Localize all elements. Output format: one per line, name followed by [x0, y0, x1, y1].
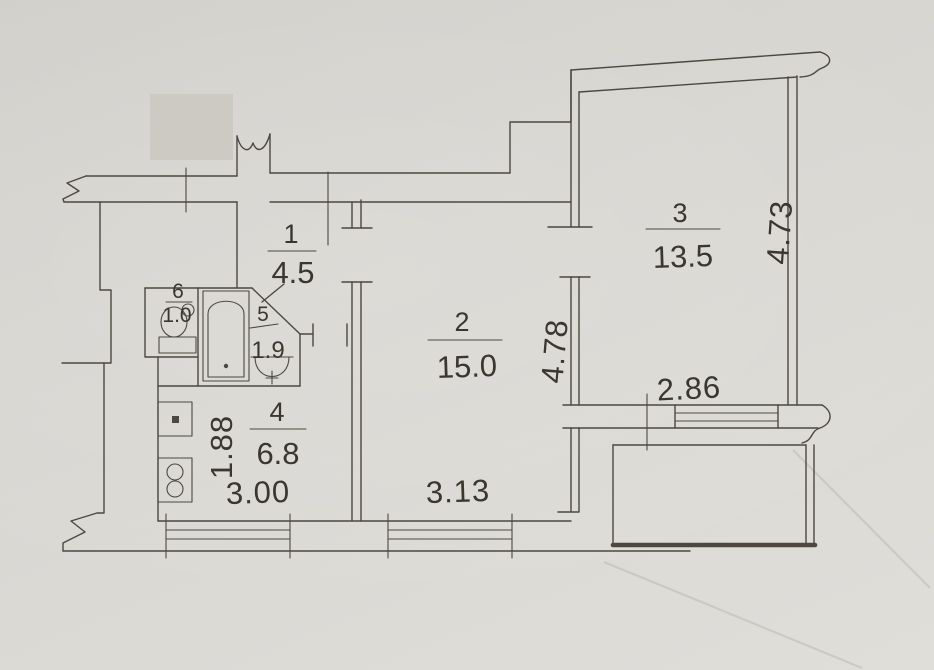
- erased-patch: [150, 94, 233, 160]
- room-1-number: 1: [283, 219, 298, 249]
- room2-window: [388, 530, 512, 539]
- room3-top-inner: [579, 77, 797, 92]
- room-5-area: 1.9: [251, 337, 284, 364]
- balcony: [613, 445, 815, 545]
- kitchen-window: [166, 530, 290, 539]
- wall-break-top-right: [800, 52, 830, 77]
- dim-kitchen-depth: 1.88: [204, 415, 239, 479]
- kitchen-sink-icon: [158, 402, 192, 436]
- corridor-door-jambs: [313, 324, 347, 346]
- wall-left-exterior: [63, 202, 111, 551]
- floor-plan-photo: 1 4.5 2 15.0 3 13.5 4 6.8 5 1.9 6 1.0 3.…: [0, 0, 934, 670]
- wall-step-room3: [510, 70, 571, 173]
- room-4-area: 6.8: [256, 436, 299, 471]
- room-5-number: 5: [257, 303, 269, 326]
- room-1-area: 4.5: [271, 255, 314, 290]
- balcony-right-rail: [806, 445, 814, 545]
- dim-room2-depth: 4.78: [534, 318, 574, 385]
- room-3-number: 3: [672, 198, 687, 228]
- room3-window: [675, 413, 778, 421]
- room-3-area: 13.5: [652, 238, 714, 275]
- room-2-area: 15.0: [436, 348, 498, 385]
- room-6-number: 6: [172, 280, 184, 303]
- wall-under-room3: [558, 428, 579, 512]
- dim-room2-width: 3.13: [425, 473, 491, 510]
- dim-room3-width: 2.86: [656, 369, 722, 407]
- room3-top-outer: [571, 52, 820, 70]
- room-labels: 1 4.5 2 15.0 3 13.5 4 6.8 5 1.9 6 1.0: [162, 198, 720, 471]
- floor-plan: 1 4.5 2 15.0 3 13.5 4 6.8 5 1.9 6 1.0 3.…: [0, 0, 934, 670]
- bathtub-icon: [203, 291, 249, 381]
- room3-window-jambs: [675, 405, 778, 428]
- room-2-number: 2: [454, 307, 469, 337]
- wall-break-right: [802, 405, 830, 443]
- stove-icon: [158, 458, 192, 502]
- dim-room3-depth: 4.73: [760, 199, 799, 266]
- wall-break-top: [237, 134, 270, 150]
- wall-break-left-top: [63, 176, 86, 202]
- room-4-number: 4: [269, 397, 284, 427]
- room-6-area: 1.0: [162, 304, 191, 327]
- paper-crease: [604, 562, 862, 668]
